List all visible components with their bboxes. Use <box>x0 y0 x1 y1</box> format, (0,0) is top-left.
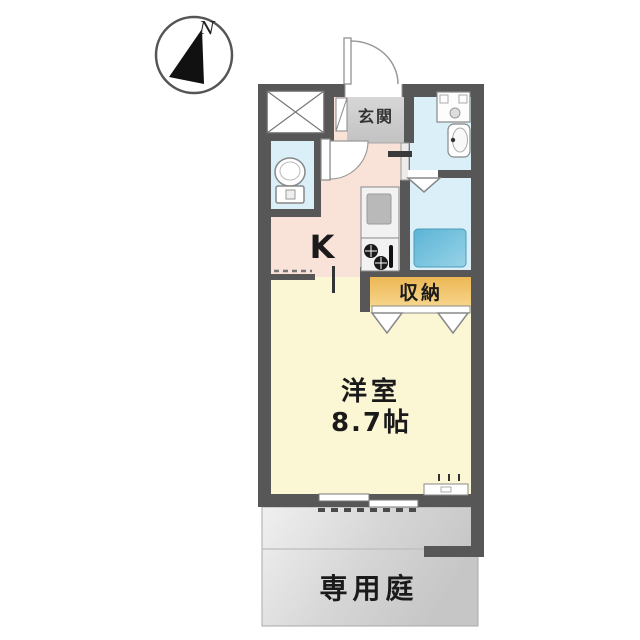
compass: N <box>156 17 232 93</box>
pipe-shaft-icon <box>267 91 324 133</box>
laundry-pan-icon <box>437 92 470 122</box>
garden: 専用庭 <box>262 507 478 626</box>
floor-plan-page: 専用庭 <box>0 0 640 640</box>
stove-grip-icon <box>389 245 393 268</box>
north-label: N <box>198 18 216 39</box>
floor-plan: 専用庭 <box>0 0 640 640</box>
main-room-label: 洋室 <box>341 376 401 407</box>
shoe-cabinet-icon <box>336 98 347 131</box>
entrance-label: 玄関 <box>358 107 394 126</box>
kitchen-sink-icon <box>367 194 391 224</box>
main-room-size-label: 8.7帖 <box>331 408 411 438</box>
toilet-icon <box>275 158 305 203</box>
garden-wall-end <box>424 546 484 557</box>
kitchen-label: K <box>310 228 336 266</box>
kitchen-unit-icon <box>361 187 399 271</box>
bathtub-icon <box>414 229 466 267</box>
closet-label: 収納 <box>399 281 443 304</box>
garden-label: 専用庭 <box>319 572 418 605</box>
entrance-door-icon <box>344 38 402 97</box>
washbasin-icon <box>448 124 470 157</box>
